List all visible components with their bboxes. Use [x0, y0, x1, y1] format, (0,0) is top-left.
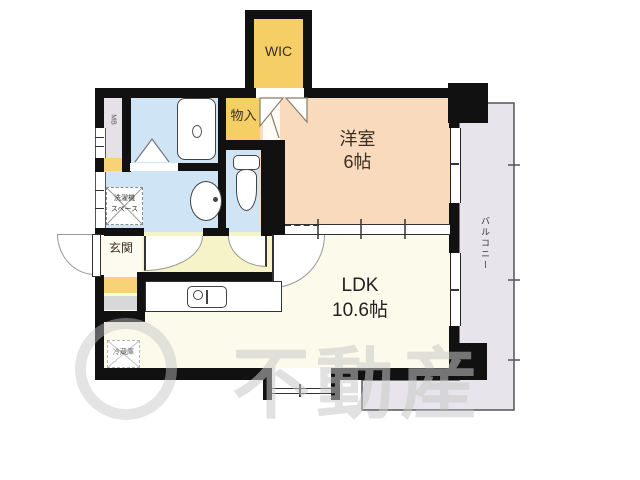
yoshitsu-label: 洋室 6帖	[300, 128, 415, 175]
ldk-size: 10.6帖	[290, 299, 430, 324]
yoshitsu-size: 6帖	[300, 151, 415, 174]
washer-line1: 洗濯機	[106, 193, 143, 204]
wic-label: WIC	[252, 42, 305, 60]
yoshitsu-name: 洋室	[300, 128, 415, 151]
washer-line2: スペース	[106, 204, 143, 215]
ldk-name: LDK	[290, 274, 430, 299]
ldk-label: LDK 10.6帖	[290, 274, 430, 323]
monoire-label: 物入	[222, 108, 265, 125]
genkan-label: 玄関	[102, 241, 140, 257]
floor-plan: WIC 物入 洋室 6帖 LDK 10.6帖 玄関 バルコニー MB 洗濯機 ス…	[0, 0, 640, 480]
mb-label: MB	[108, 111, 117, 129]
symbol-overlay	[0, 0, 640, 480]
balcony-label: バルコニー	[472, 198, 490, 288]
wic-bifold-door	[286, 98, 307, 122]
bathroom-folding-door	[135, 139, 169, 162]
fridge-label: 冷蔵庫	[107, 348, 140, 357]
washer-space-label: 洗濯機 スペース	[106, 193, 143, 215]
